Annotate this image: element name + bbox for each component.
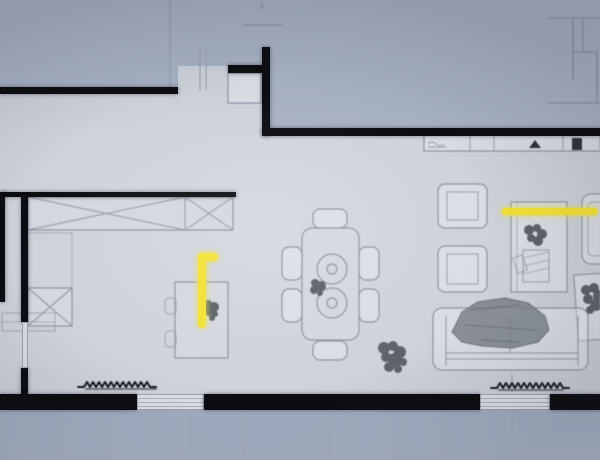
window-bottom-right: [480, 394, 550, 410]
interior-door-leaf: [22, 322, 28, 368]
wall-bottom-1: [0, 394, 137, 410]
wall-left-edge: [0, 192, 5, 302]
wall-entry-vertical: [262, 47, 270, 136]
tv-cabinet: [511, 202, 567, 292]
wall-left-vertical-upper: [21, 197, 28, 322]
wall-top-right: [262, 128, 600, 136]
wall-entry-horizontal: [228, 65, 264, 73]
window-shrubs-right: [491, 383, 569, 390]
terrace-lines: [190, 374, 512, 460]
wall-bottom-3: [550, 394, 600, 410]
wall-light-highlight[interactable]: [502, 208, 598, 215]
window-shrubs-left: [78, 382, 156, 389]
wall-left-vertical-lower: [21, 368, 28, 395]
wall-top-left: [0, 87, 178, 94]
appliance-icon: [572, 138, 582, 150]
laundry-unit: [28, 288, 72, 326]
entry-cabinet: [228, 73, 261, 103]
floor-plan-canvas: [0, 0, 600, 460]
armchair-2: [438, 246, 487, 292]
dining-table: [302, 228, 359, 340]
wall-bottom-2: [204, 394, 480, 410]
front-door: [200, 48, 206, 90]
blanket: [452, 298, 549, 348]
wall-bedroom: [0, 192, 236, 197]
desk-lamp-highlight[interactable]: [198, 253, 206, 328]
desk: [165, 282, 228, 358]
furniture-sketch-layer: [0, 0, 600, 460]
floor-plant: [378, 341, 407, 373]
wardrobe: [28, 197, 233, 230]
desk-lamp-highlight-arm[interactable]: [202, 253, 218, 261]
window-bottom-left: [137, 394, 204, 410]
corner-armchair: [582, 194, 600, 264]
left-counter: [28, 233, 72, 288]
armchair-1: [438, 184, 487, 228]
